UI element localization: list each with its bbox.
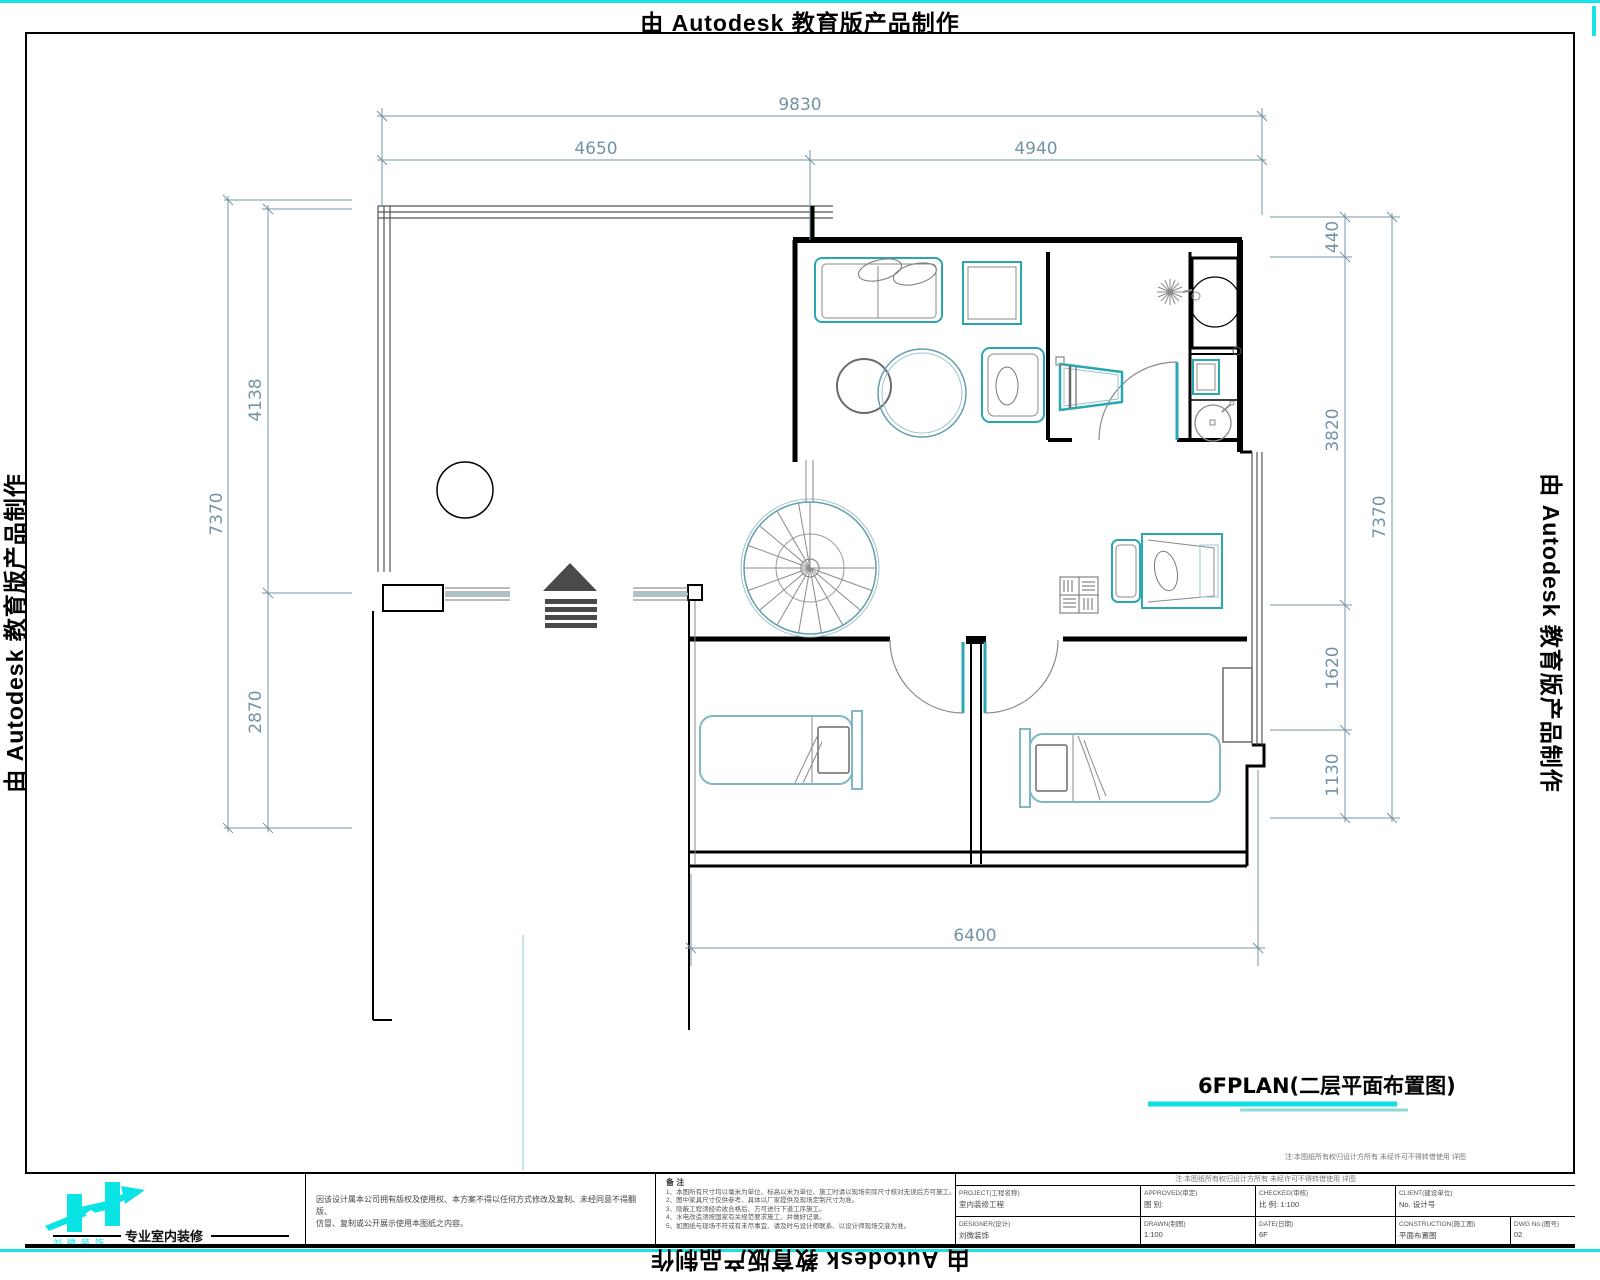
title-block-notes-cell: 备 注 1、本图所有尺寸均以毫米为单位、标高以米为单位、施工时请以现场实际尺寸核…	[655, 1174, 955, 1244]
title-block-fields-cell: 注:本图纸所有权归设计方所有 未经许可不得转借使用 详图 PROJECT(工程名…	[955, 1174, 1575, 1244]
note-line: 5、如图纸与现场不符或有未尽事宜、请及时与设计师联系、以设计师现场交底为准。	[656, 1223, 955, 1231]
shower-head-icon	[1157, 279, 1200, 305]
rug-hatch	[1060, 577, 1098, 613]
bath-shelf	[1193, 360, 1219, 394]
stair-direction-arrow	[543, 563, 597, 628]
doors	[890, 362, 1177, 713]
desk-chair	[1112, 540, 1140, 602]
logo-subtext: 刘微装饰	[53, 1237, 109, 1244]
field-construction: CONSTRUCTION(施工图) 平面布置图	[1396, 1217, 1511, 1244]
window-wall-top	[378, 206, 833, 218]
note-line: 4、水电改造须按国家有关规范要求施工、并做好记录。	[656, 1214, 955, 1222]
dim-right-overall: 7370	[1370, 495, 1390, 538]
desk	[1142, 534, 1222, 608]
fields-strip-note: 注:本图纸所有权归设计方所有 未经许可不得转借使用 详图	[956, 1174, 1575, 1185]
drawing-sheet: 由 Autodesk 教育版产品制作 由 Autodesk 教育版产品制作 由 …	[0, 0, 1600, 1280]
company-logo: 刘微装饰 专业室内装修	[25, 1174, 305, 1244]
fields-row-1: PROJECT(工程名称) 室内装修工程 APPROVED(审定) 图 别: C…	[956, 1185, 1575, 1216]
note-line: 2、图中家具尺寸仅供参考、具体以厂家提供及现场定制尺寸为准。	[656, 1197, 955, 1205]
toilet	[1056, 357, 1122, 410]
logo-slogan: 专业室内装修	[125, 1229, 204, 1244]
nightstand	[1223, 668, 1252, 742]
round-table	[437, 462, 493, 518]
washbasin	[1195, 401, 1234, 441]
armchair	[982, 348, 1044, 422]
plan-title: 6FPLAN(二层平面布置图)	[1198, 1074, 1456, 1098]
field-approved: APPROVED(审定) 图 别:	[1141, 1186, 1256, 1216]
field-client: CLIENT(建设单位) No. 设计号	[1396, 1186, 1575, 1216]
spiral-staircase	[741, 460, 879, 637]
title-block-logo-cell: 刘微装饰 专业室内装修	[25, 1174, 305, 1244]
sheet-note: 注:本图纸所有权归设计方所有 未经许可不得转借使用 详图	[1285, 1152, 1466, 1162]
door-swing-bedroom2	[985, 640, 1058, 713]
window-wall-right	[1252, 452, 1262, 745]
disclaimer-line1: 因该设计属本公司拥有版权及使用权、本方案不得以任何方式修改及复制、未经同意不得翻…	[316, 1194, 647, 1218]
window-wall-left	[378, 206, 390, 572]
field-checked: CHECKED(审核) 比 例: 1:100	[1256, 1186, 1396, 1216]
sofa	[815, 255, 942, 322]
fields-row-2: DESIGNER(设计) 刘微装饰 DRAWN(制图) 1:100 DATE(日…	[956, 1216, 1575, 1244]
field-date: DATE(日期) 6F	[1256, 1217, 1396, 1244]
disclaimer-line2: 仿冒、复制或公开展示使用本图纸之内容。	[316, 1218, 647, 1230]
notes-header: 备 注	[656, 1174, 955, 1189]
dim-top-left: 4650	[574, 139, 617, 159]
bed-2	[1020, 729, 1220, 807]
dim-bottom-overall: 6400	[953, 926, 996, 946]
dim-top-overall: 9830	[778, 95, 821, 115]
washing-machine	[1190, 277, 1241, 355]
title-block-disclaimer-cell: 因该设计属本公司拥有版权及使用权、本方案不得以任何方式修改及复制、未经同意不得翻…	[305, 1174, 655, 1244]
plan-title-group: 6FPLAN(二层平面布置图)	[1148, 1074, 1456, 1110]
bed-1	[700, 711, 862, 789]
dim-right-1: 440	[1323, 221, 1343, 253]
floor-plan-canvas: 9830 4650 4940 7370 4138 2870 440 3820 1…	[0, 0, 1600, 1280]
dim-right-3: 1620	[1323, 646, 1343, 689]
field-dwg-no: DWG No.(图号) 02	[1511, 1217, 1575, 1244]
door-swing-bedroom1	[890, 640, 963, 713]
field-drawn: DRAWN(制图) 1:100	[1141, 1217, 1256, 1244]
field-designer: DESIGNER(设计) 刘微装饰	[956, 1217, 1141, 1244]
dim-left-upper: 4138	[246, 378, 266, 421]
field-project: PROJECT(工程名称) 室内装修工程	[956, 1186, 1141, 1216]
logo-arrow-head	[121, 1186, 145, 1204]
dim-left-overall: 7370	[207, 492, 227, 535]
large-round-table	[878, 349, 966, 437]
dim-right-2: 3820	[1323, 408, 1343, 451]
dim-top-right: 4940	[1014, 139, 1057, 159]
dim-right-4: 1130	[1323, 753, 1343, 796]
title-block: 刘微装饰 专业室内装修 因该设计属本公司拥有版权及使用权、本方案不得以任何方式修…	[25, 1172, 1575, 1246]
side-table	[963, 262, 1021, 324]
dim-left-lower: 2870	[246, 690, 266, 733]
